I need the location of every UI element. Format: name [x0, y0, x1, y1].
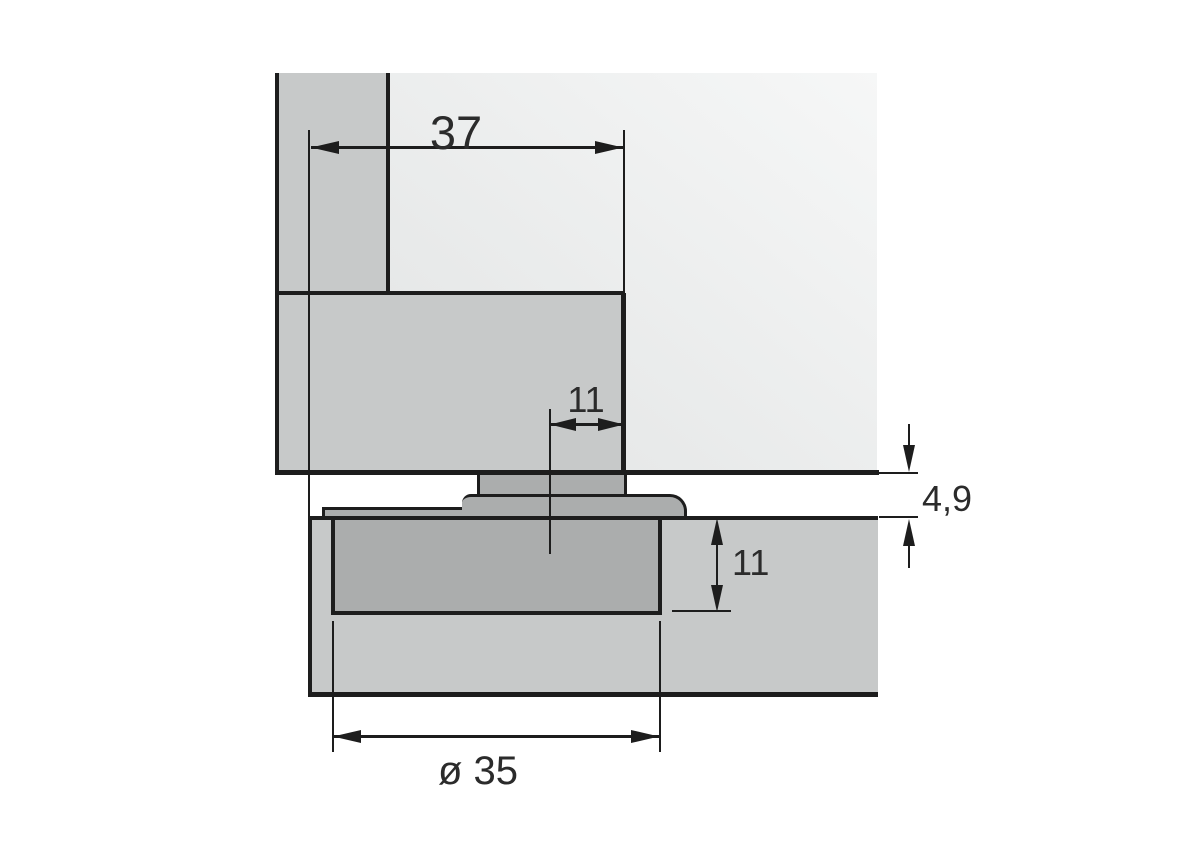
dim35-extension-right [659, 621, 661, 752]
dim35-line [333, 735, 660, 738]
block-top-line [277, 291, 625, 295]
dim35-arrowhead-left-icon [333, 730, 361, 743]
dim37-label: 37 [396, 109, 516, 156]
dim35-label: ø 35 [398, 751, 558, 791]
left-edge-line [275, 73, 279, 474]
side-panel-edge-strip [277, 73, 388, 293]
dim49-lower-leader [908, 545, 910, 568]
dim11a-extension-line [549, 409, 551, 554]
dim11b-extension-line [672, 610, 731, 612]
dim49-arrowhead-up-icon [903, 519, 915, 546]
dim35-arrowhead-right-icon [631, 730, 659, 743]
dim11a-label: 11 [546, 382, 626, 418]
dim37-extension-right [623, 130, 625, 293]
hinge-cup [331, 520, 662, 615]
technical-drawing-canvas: 37 11 4,9 11 ø 35 [0, 0, 1184, 864]
dim49-arrowhead-down-icon [903, 445, 915, 472]
dim49-upper-leader [908, 424, 910, 448]
dim11b-label: 11 [732, 545, 792, 581]
dim35-extension-left [332, 621, 334, 752]
dim49-label: 4,9 [922, 481, 982, 517]
dim37-extension-left [308, 130, 310, 516]
dim49-extension-bottom [879, 516, 918, 518]
dim49-extension-top [879, 472, 918, 474]
strip-right-edge-line [386, 73, 390, 295]
